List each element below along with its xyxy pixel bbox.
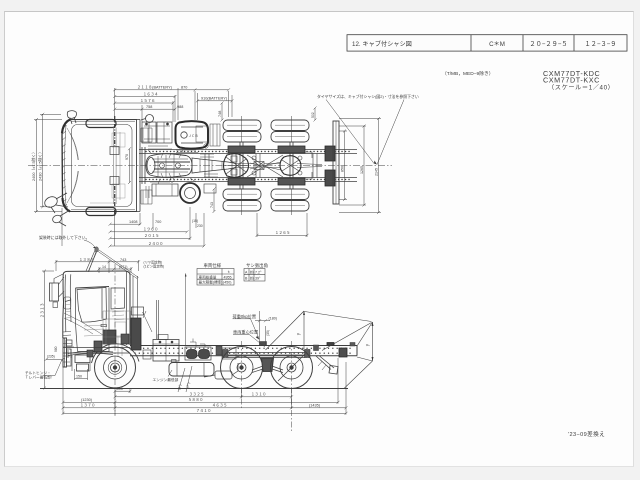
- svg-text:１３１０: １３１０: [251, 393, 266, 397]
- svg-text:エンジン最低部: エンジン最低部: [153, 377, 179, 382]
- svg-text:３３２５: ３３２５: [189, 393, 204, 397]
- svg-text:12. キャブ付シャシ図: 12. キャブ付シャシ図: [352, 40, 412, 48]
- svg-text:２０１５: ２０１５: [144, 234, 159, 238]
- svg-text:1265: 1265: [360, 166, 364, 174]
- svg-text:B: B: [245, 277, 248, 281]
- svg-text:約: 約: [250, 269, 254, 274]
- svg-text:400: 400: [117, 387, 123, 391]
- svg-text:743: 743: [210, 202, 214, 208]
- svg-text:230: 230: [197, 224, 203, 228]
- svg-text:(35): (35): [266, 330, 270, 336]
- svg-text:150: 150: [76, 374, 82, 378]
- svg-text:４６３５: ４６３５: [212, 404, 227, 408]
- svg-text:(1ピン固定時): (1ピン固定時): [144, 263, 165, 268]
- svg-text:(1230): (1230): [81, 398, 93, 402]
- svg-text:'23−09差換え: '23−09差換え: [568, 430, 605, 438]
- svg-text:ｙ: ｙ: [297, 332, 301, 336]
- svg-text:サシ張出角: サシ張出角: [246, 262, 268, 269]
- svg-text:2400（±7.5除く）: 2400（±7.5除く）: [31, 150, 36, 181]
- svg-text:車両仕様: 車両仕様: [204, 262, 222, 269]
- svg-text:（スケール＝1／40）: （スケール＝1／40）: [548, 85, 614, 92]
- svg-text:車両総重量: 車両総重量: [199, 274, 217, 279]
- svg-text:１３７０: １３７０: [80, 404, 95, 408]
- svg-text:２４００: ２４００: [148, 242, 163, 246]
- svg-text:850: 850: [340, 166, 344, 172]
- svg-text:タイヤサイズは、キャブ付シャシ(図2)・寸法を参照下さい: タイヤサイズは、キャブ付シャシ(図2)・寸法を参照下さい: [317, 94, 419, 99]
- svg-text:743: 743: [120, 258, 126, 262]
- svg-text:１６３４: １６３４: [143, 92, 158, 96]
- svg-text:約: 約: [250, 276, 254, 281]
- svg-text:５８８０: ５８８０: [188, 398, 203, 402]
- svg-text:1408: 1408: [129, 220, 137, 224]
- svg-text:架装時には取外して下さい。: 架装時には取外して下さい。: [39, 235, 89, 240]
- svg-text:CXM77DT-KXC: CXM77DT-KXC: [543, 76, 600, 85]
- svg-text:（T/MB，MED−9除き）: （T/MB，MED−9除き）: [442, 70, 494, 77]
- svg-text:(235): (235): [47, 355, 55, 359]
- svg-text:(15): (15): [192, 219, 198, 223]
- svg-text:980: 980: [54, 346, 58, 352]
- svg-text:(1435): (1435): [309, 404, 321, 408]
- svg-text:39°: 39°: [255, 277, 261, 281]
- svg-text:C＊M: C＊M: [489, 41, 505, 48]
- svg-text:(7°): (7°): [186, 382, 191, 388]
- svg-text:14: 14: [102, 265, 106, 269]
- svg-text:2145: 2145: [374, 168, 378, 176]
- svg-text:758: 758: [146, 105, 152, 109]
- svg-text:１３８５: １３８５: [79, 258, 94, 262]
- svg-text:7.2°: 7.2°: [255, 270, 262, 274]
- svg-text:１２６５: １２６５: [275, 231, 290, 235]
- svg-text:700: 700: [155, 220, 161, 224]
- svg-text:チルトヒンジ・: チルトヒンジ・: [25, 370, 51, 375]
- svg-text:870: 870: [181, 86, 187, 90]
- svg-text:748: 748: [218, 111, 222, 117]
- svg-text:970: 970: [125, 154, 129, 160]
- svg-text:2430（±7.5除く）: 2430（±7.5除く）: [38, 150, 43, 181]
- svg-text:１２−３−９: １２−３−９: [585, 41, 617, 48]
- svg-text:(180): (180): [269, 317, 277, 321]
- svg-text:A: A: [245, 270, 248, 274]
- svg-text:１５７６: １５７６: [140, 99, 155, 103]
- svg-text:ＪＣＢ: ＪＣＢ: [188, 134, 198, 138]
- svg-text:910(BATTERY): 910(BATTERY): [201, 97, 228, 101]
- svg-text:７４１０: ７４１０: [196, 409, 211, 413]
- svg-text:(9°): (9°): [177, 384, 182, 390]
- svg-text:２０−２９−５: ２０−２９−５: [529, 41, 567, 48]
- svg-text:最大積載(標準): 最大積載(標準): [199, 280, 223, 285]
- svg-text:２３１３: ２３１３: [41, 303, 45, 318]
- svg-text:502: 502: [311, 112, 315, 118]
- svg-text:988: 988: [177, 105, 183, 109]
- svg-text:ｙ: ｙ: [366, 343, 370, 347]
- svg-text:4955: 4955: [224, 275, 232, 279]
- svg-text:１９６０: １９６０: [143, 228, 158, 232]
- svg-text:ｔ: ｔ: [227, 270, 231, 274]
- svg-text:(450): (450): [223, 281, 231, 285]
- svg-text:２１１８(BATTERY): ２１１８(BATTERY): [137, 86, 173, 90]
